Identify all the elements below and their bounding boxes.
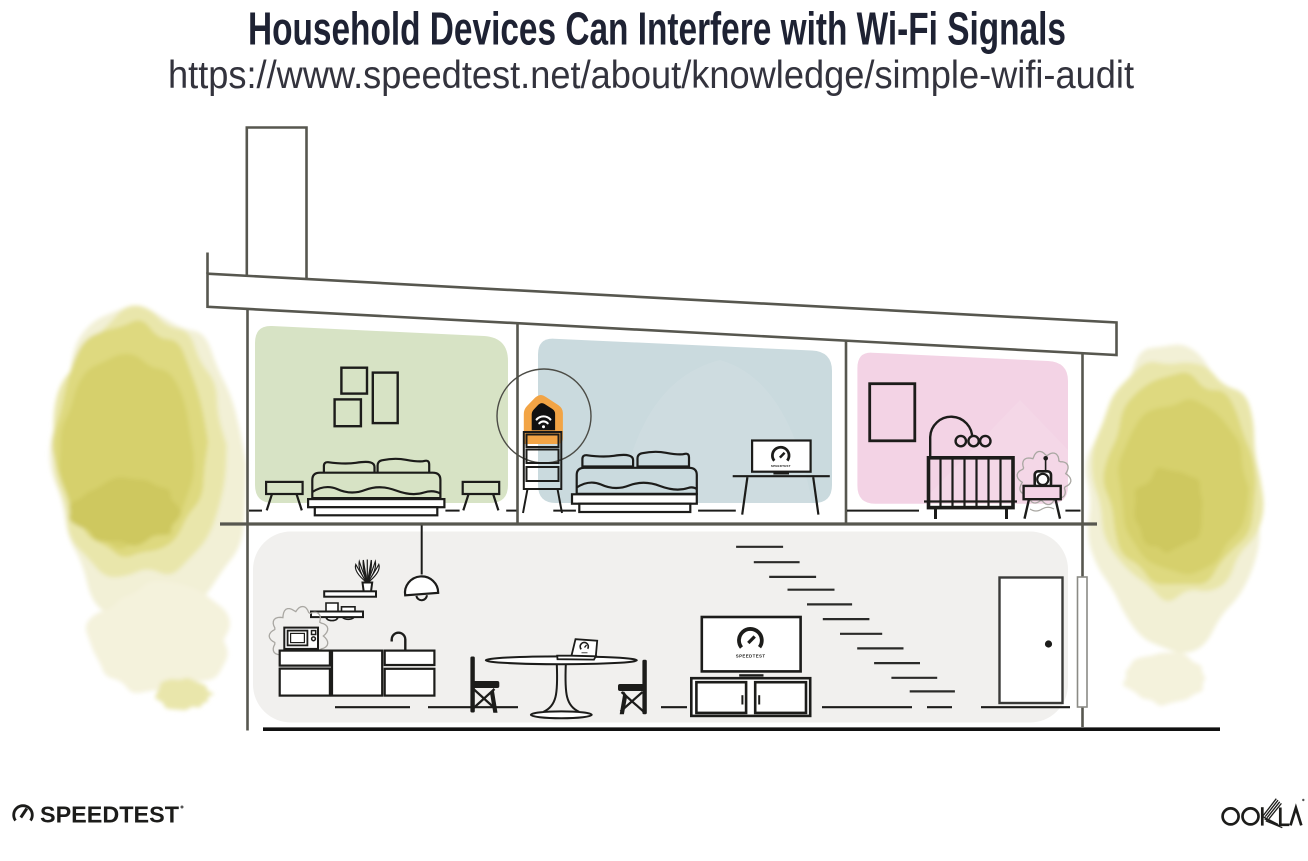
svg-text:SPEEDTEST: SPEEDTEST	[771, 464, 791, 468]
svg-text:SPEEDTEST: SPEEDTEST	[40, 802, 180, 828]
svg-text:https://www.speedtest.net/abou: https://www.speedtest.net/about/knowledg…	[168, 54, 1134, 97]
svg-text:SPEEDTEST: SPEEDTEST	[736, 653, 766, 658]
svg-text:Household Devices Can Interfer: Household Devices Can Interfere with Wi-…	[248, 3, 1066, 55]
